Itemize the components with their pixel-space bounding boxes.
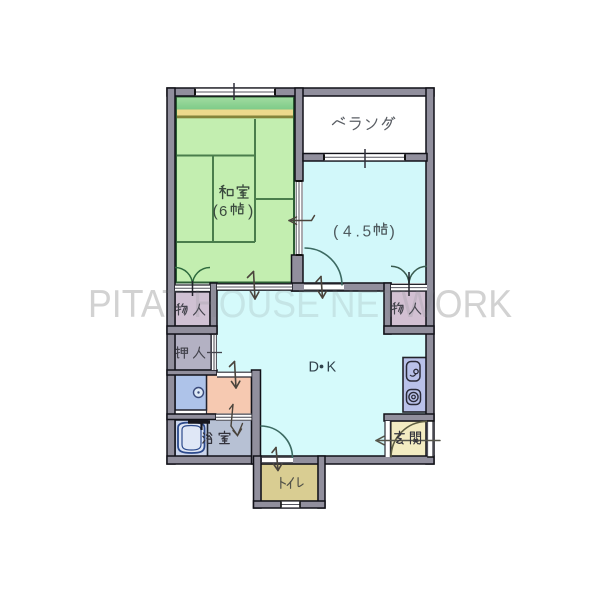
svg-text:5: 5 (363, 224, 372, 241)
svg-text:6: 6 (219, 203, 227, 220)
svg-text:(: ( (213, 203, 219, 220)
svg-text:K: K (327, 360, 337, 376)
svg-text:(: ( (333, 224, 339, 241)
svg-text:.: . (356, 224, 360, 241)
svg-text:): ) (390, 224, 395, 241)
svg-text:D: D (309, 360, 319, 376)
svg-text:4: 4 (343, 224, 352, 241)
svg-text:): ) (248, 203, 253, 220)
